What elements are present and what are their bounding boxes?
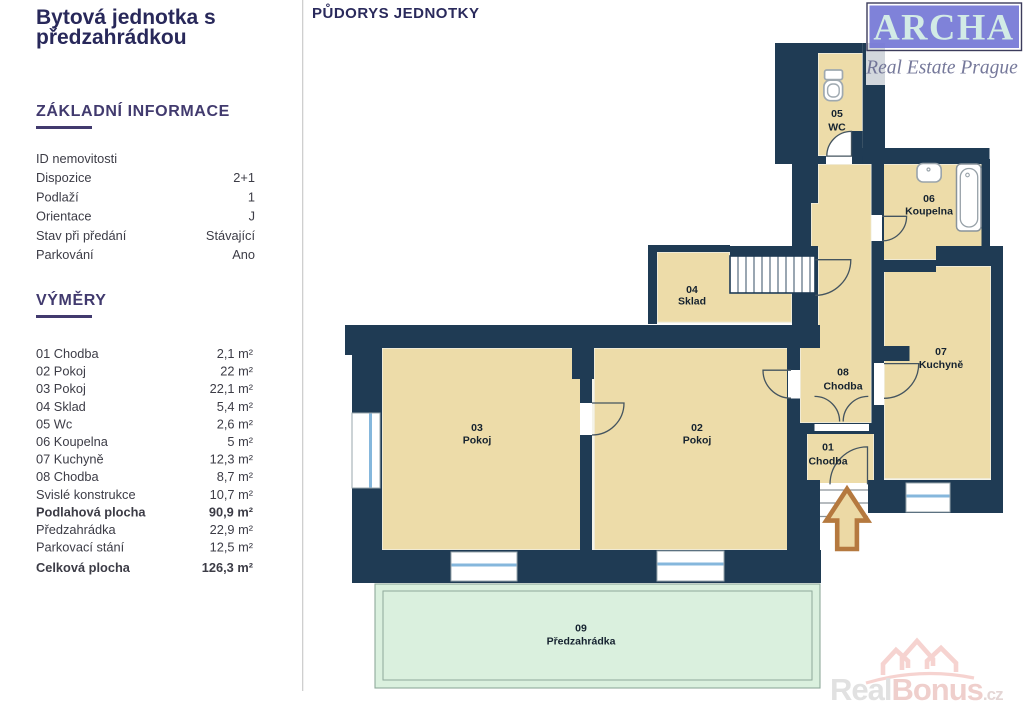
svg-text:22 m²: 22 m²: [220, 364, 253, 379]
svg-text:Pokoj: Pokoj: [683, 435, 712, 447]
svg-text:předzahrádkou: předzahrádkou: [36, 26, 187, 49]
svg-text:5,4 m²: 5,4 m²: [217, 399, 254, 414]
svg-text:VÝMĚRY: VÝMĚRY: [36, 290, 107, 309]
svg-text:1: 1: [248, 189, 255, 204]
svg-text:04: 04: [686, 284, 698, 296]
svg-text:Sklad: Sklad: [678, 296, 706, 308]
svg-text:22,9 m²: 22,9 m²: [210, 522, 254, 537]
svg-text:03 Pokoj: 03 Pokoj: [36, 381, 86, 396]
svg-text:02: 02: [691, 422, 703, 434]
svg-text:06: 06: [923, 193, 935, 205]
svg-text:WC: WC: [828, 122, 846, 134]
svg-text:07 Kuchyně: 07 Kuchyně: [36, 452, 104, 467]
svg-text:Celková plocha: Celková plocha: [36, 560, 131, 575]
svg-text:2,6 m²: 2,6 m²: [217, 416, 254, 431]
svg-text:10,7 m²: 10,7 m²: [210, 487, 254, 502]
svg-text:05: 05: [831, 108, 843, 120]
svg-text:Real Estate Prague: Real Estate Prague: [865, 58, 1018, 79]
svg-text:ARCHA: ARCHA: [873, 7, 1014, 48]
svg-text:8,7 m²: 8,7 m²: [217, 469, 254, 484]
svg-text:04 Sklad: 04 Sklad: [36, 399, 86, 414]
svg-text:ID nemovitosti: ID nemovitosti: [36, 151, 117, 166]
svg-text:PŮDORYS JEDNOTKY: PŮDORYS JEDNOTKY: [312, 3, 479, 22]
svg-text:2,1 m²: 2,1 m²: [217, 346, 254, 361]
svg-text:Parkování: Parkování: [36, 247, 94, 262]
svg-text:Předzahrádka: Předzahrádka: [36, 522, 117, 537]
svg-text:Orientace: Orientace: [36, 209, 91, 224]
svg-text:02 Pokoj: 02 Pokoj: [36, 364, 86, 379]
svg-text:03: 03: [471, 422, 483, 434]
svg-text:Kuchyně: Kuchyně: [919, 359, 964, 371]
svg-text:06 Koupelna: 06 Koupelna: [36, 434, 109, 449]
svg-text:Chodba: Chodba: [808, 456, 847, 468]
svg-text:126,3 m²: 126,3 m²: [202, 560, 253, 575]
svg-text:2+1: 2+1: [233, 170, 255, 185]
svg-text:ZÁKLADNÍ INFORMACE: ZÁKLADNÍ INFORMACE: [36, 101, 230, 120]
svg-text:Stav při předání: Stav při předání: [36, 228, 127, 243]
svg-text:Pokoj: Pokoj: [463, 435, 492, 447]
svg-text:05 Wc: 05 Wc: [36, 416, 73, 431]
svg-text:Koupelna: Koupelna: [905, 206, 953, 218]
svg-text:J: J: [249, 209, 255, 224]
svg-text:Stávající: Stávající: [206, 228, 256, 243]
svg-text:Dispozice: Dispozice: [36, 170, 91, 185]
svg-text:Ano: Ano: [232, 247, 255, 262]
svg-text:08: 08: [837, 367, 849, 379]
svg-text:Parkovací stání: Parkovací stání: [36, 540, 125, 555]
svg-text:Chodba: Chodba: [823, 381, 862, 393]
svg-text:RealBonus.cz: RealBonus.cz: [830, 672, 1003, 707]
svg-text:Podlaží: Podlaží: [36, 189, 79, 204]
svg-text:Podlahová plocha: Podlahová plocha: [36, 504, 146, 519]
svg-text:12,3 m²: 12,3 m²: [210, 452, 254, 467]
svg-text:09: 09: [575, 623, 587, 635]
svg-text:Svislé konstrukce: Svislé konstrukce: [36, 487, 136, 502]
svg-text:22,1 m²: 22,1 m²: [210, 381, 254, 396]
svg-text:01 Chodba: 01 Chodba: [36, 346, 99, 361]
svg-text:01: 01: [822, 442, 834, 454]
svg-text:5 m²: 5 m²: [227, 434, 253, 449]
svg-text:12,5 m²: 12,5 m²: [210, 540, 254, 555]
svg-text:Předzahrádka: Předzahrádka: [547, 636, 616, 648]
svg-text:90,9 m²: 90,9 m²: [209, 504, 253, 519]
svg-text:07: 07: [935, 346, 947, 358]
svg-text:08 Chodba: 08 Chodba: [36, 469, 99, 484]
